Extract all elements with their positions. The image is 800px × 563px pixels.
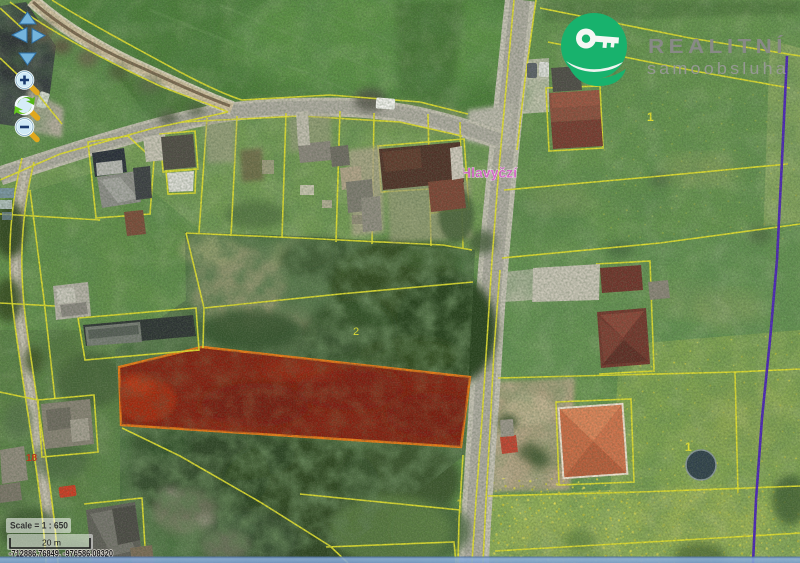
svg-text:samoobsluha: samoobsluha xyxy=(647,59,789,78)
svg-text:20 m: 20 m xyxy=(42,538,61,548)
svg-text:REALITNÍ: REALITNÍ xyxy=(648,35,787,58)
svg-text:Scale = 1 : 650: Scale = 1 : 650 xyxy=(10,521,68,532)
